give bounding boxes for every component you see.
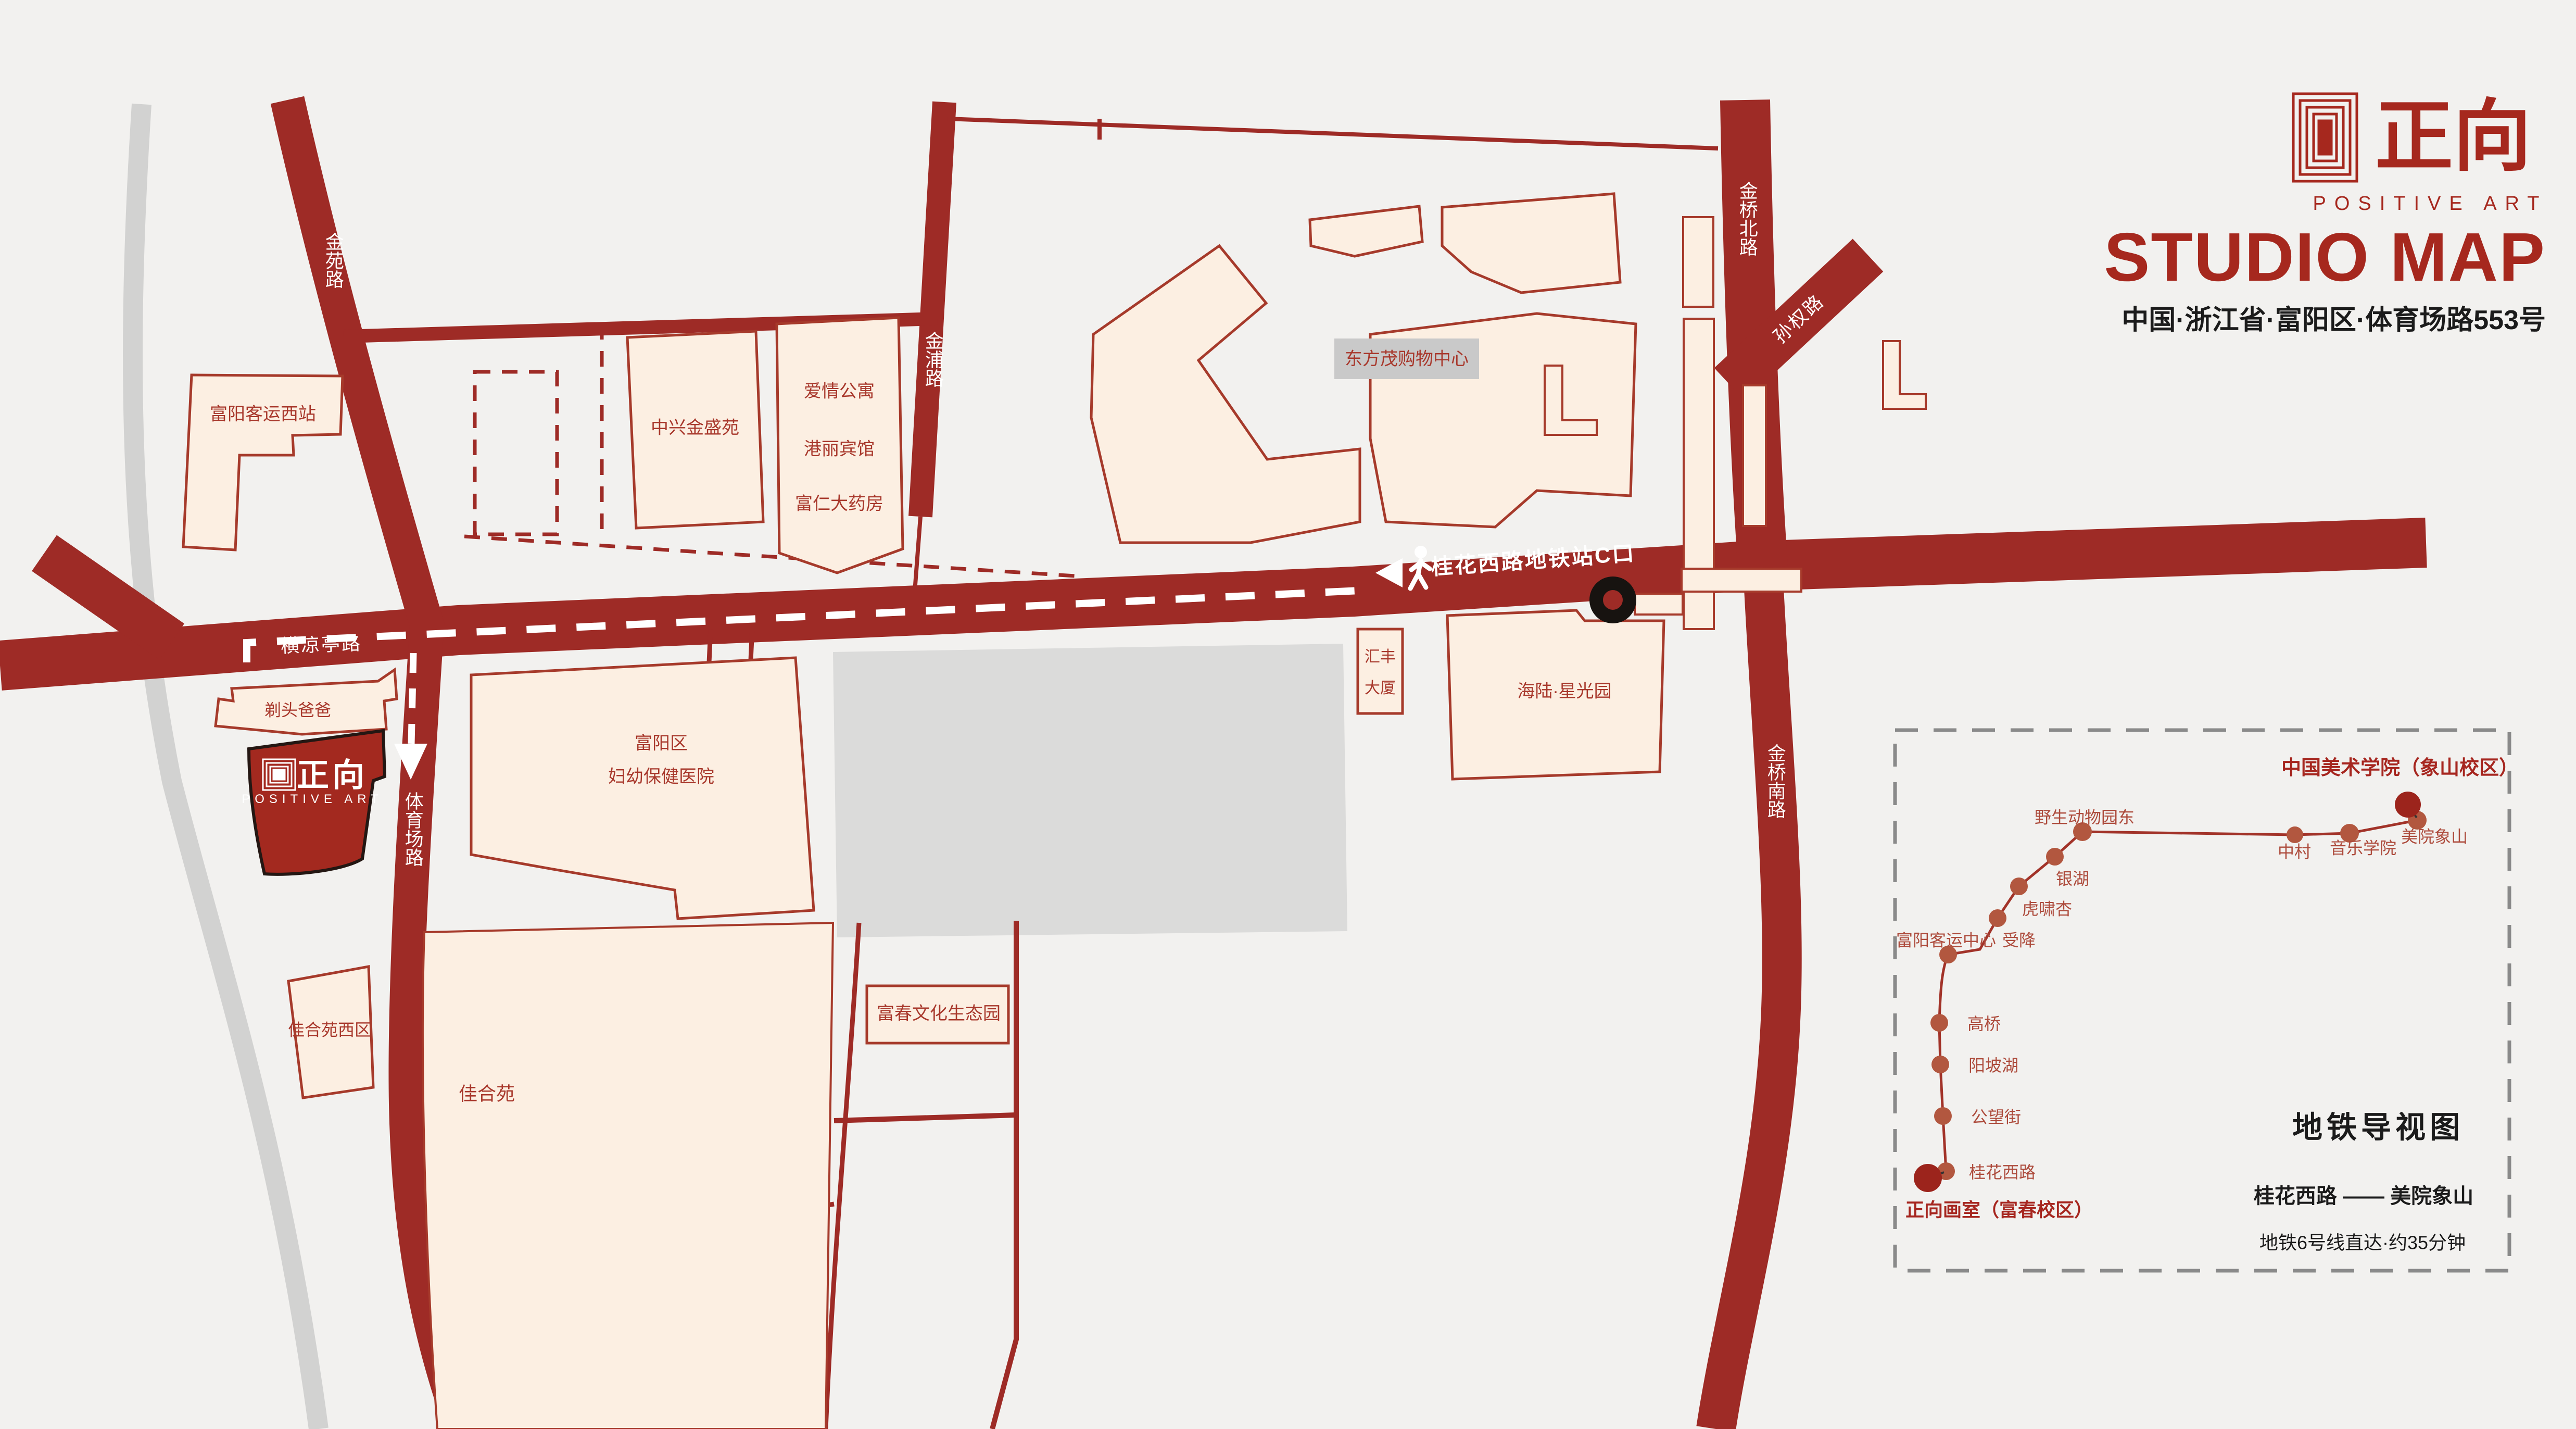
building-label-hailu: 海陆·星光园 <box>1517 681 1611 701</box>
dashed-parcel-lines <box>464 324 1076 576</box>
station-label-yinhu: 银湖 <box>2056 870 2089 889</box>
station-label-huxiaoxing: 虎啸杏 <box>2022 900 2072 919</box>
building-label-hospital-1: 富阳区 <box>635 733 688 754</box>
building-label-huifeng-2: 大厦 <box>1365 680 1396 698</box>
building-label-fuyang-west-bus-station: 富阳客运西站 <box>210 404 316 424</box>
building-label-furen-dayaofang: 富仁大药房 <box>795 494 883 514</box>
building-huifeng <box>1358 629 1403 713</box>
building-dongfangmao-1 <box>1442 194 1620 293</box>
metro-exit-marker-center <box>1603 590 1623 610</box>
building-hospital <box>471 658 814 919</box>
studio-logo-subtext: POSITIVE ART <box>242 792 383 807</box>
station-label-yesheng-dongwuyuan-east: 野生动物园东 <box>2035 808 2135 828</box>
building-label-gangli-binguan: 港丽宾馆 <box>804 439 875 459</box>
station-walkway-west <box>1635 594 1683 615</box>
building-label-titoubaba: 剃头爸爸 <box>264 701 331 720</box>
header-address: 中国·浙江省·富阳区·体育场路553号 <box>2122 298 2546 337</box>
road-label-jinqiao-south: 金桥南路 <box>1764 744 1786 819</box>
origin-dot <box>1914 1164 1942 1192</box>
building-label-dongfangmao: 东方茂购物中心 <box>1345 349 1469 369</box>
road-jinpu-thin <box>915 517 920 592</box>
road-label-hengliangting: 横凉亭路 <box>280 633 362 657</box>
header-logo-text: 正向 <box>2375 92 2531 182</box>
station-label-gongwangjie: 公望街 <box>1971 1104 2021 1128</box>
road-label-jinpu: 金浦路 <box>922 331 943 387</box>
studio-logo-text: 正向 <box>297 757 368 794</box>
station-walkway-east <box>1682 569 1801 592</box>
station-label-gaoqiao: 高桥 <box>1967 1011 2001 1035</box>
building-dongfangmao-3 <box>1091 246 1360 543</box>
station-label-yangpohu: 阳坡湖 <box>1968 1052 2018 1076</box>
station-label-fuyang-keyun-center: 富阳客运中心 <box>1896 931 1996 950</box>
header-logo-subtext: POSITIVE ART <box>2313 193 2547 216</box>
building-label-jiaheyuan: 佳合苑 <box>459 1083 515 1104</box>
road-label-tiyuchang: 体育场路 <box>402 792 423 867</box>
parking-block <box>833 644 1347 937</box>
building-label-huifeng-1: 汇丰 <box>1365 648 1396 667</box>
building-label-hospital-2: 妇幼保健医院 <box>608 767 714 787</box>
road-jinqiao-south <box>1716 568 1782 1429</box>
building-label-aiqing-gongyu: 爱情公寓 <box>804 381 875 402</box>
station-label-yinyue-xueyuan: 音乐学院 <box>2330 839 2396 858</box>
map-canvas <box>0 0 2576 1429</box>
inset-origin-label: 正向画室（富春校区） <box>1905 1199 2093 1220</box>
building-label-zhongxing-jinshengyuan: 中兴金盛苑 <box>651 418 739 438</box>
road-label-jinyuan: 金苑路 <box>322 232 344 289</box>
building-fuyang-west-bus-station <box>183 375 343 550</box>
station-structure-4 <box>1883 341 1926 409</box>
inset-route-endpoints: 桂花西路 —— 美院象山 <box>2254 1184 2473 1208</box>
building-label-fuchun-park: 富春文化生态园 <box>877 1004 1001 1024</box>
road-jinpu <box>920 102 944 517</box>
building-jiaheyuan <box>423 923 833 1429</box>
station-label-meiyuan-xiangshan: 美院象山 <box>2401 828 2468 847</box>
header-logo-icon <box>2293 94 2357 181</box>
station-structure-3 <box>1743 385 1766 526</box>
road-label-jinqiao-north: 金桥北路 <box>1736 181 1758 256</box>
page-title: STUDIO MAP <box>2104 218 2546 296</box>
station-structure-2 <box>1683 217 1713 307</box>
studio-map-poster: 金苑路 金浦路 金桥北路 金桥南路 体育场路 横凉亭路 孙权路 桂花西路地铁站C… <box>0 0 2576 1429</box>
destination-dot <box>2395 792 2421 818</box>
station-label-zhongcun: 中村 <box>2278 843 2311 862</box>
station-label-guihuaxilu: 桂花西路 <box>1969 1159 2036 1183</box>
inset-title: 地铁导视图 <box>2292 1111 2464 1146</box>
station-label-shoujiang: 受降 <box>2002 931 2036 950</box>
building-dongfangmao-2 <box>1310 206 1422 256</box>
building-label-jiaheyuan-west: 佳合苑西区 <box>288 1021 371 1040</box>
inset-destination-label: 中国美术学院（象山校区） <box>2281 757 2519 780</box>
inset-route-note: 地铁6号线直达·约35分钟 <box>2259 1232 2466 1253</box>
